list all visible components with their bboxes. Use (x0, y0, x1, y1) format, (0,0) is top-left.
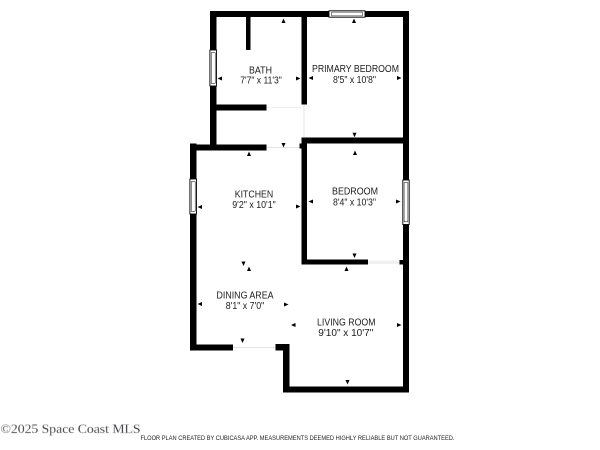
svg-text:©2025 Space Coast MLS: ©2025 Space Coast MLS (1, 422, 141, 436)
svg-text:PRIMARY BEDROOM: PRIMARY BEDROOM (312, 64, 399, 75)
svg-text:8'1" x 7'0": 8'1" x 7'0" (226, 301, 265, 312)
svg-text:8'5" x 10'8": 8'5" x 10'8" (333, 75, 376, 86)
svg-text:7'7" x 11'3": 7'7" x 11'3" (240, 76, 282, 87)
svg-text:LIVING ROOM: LIVING ROOM (317, 317, 376, 328)
svg-text:9'10" x 10'7": 9'10" x 10'7" (318, 328, 373, 339)
svg-text:9'2" x 10'1": 9'2" x 10'1" (232, 200, 276, 211)
svg-text:BEDROOM: BEDROOM (332, 187, 378, 198)
svg-text:8'4" x 10'3": 8'4" x 10'3" (333, 197, 376, 208)
svg-text:FLOOR PLAN CREATED BY CUBICASA: FLOOR PLAN CREATED BY CUBICASA APP. MEAS… (141, 436, 455, 442)
